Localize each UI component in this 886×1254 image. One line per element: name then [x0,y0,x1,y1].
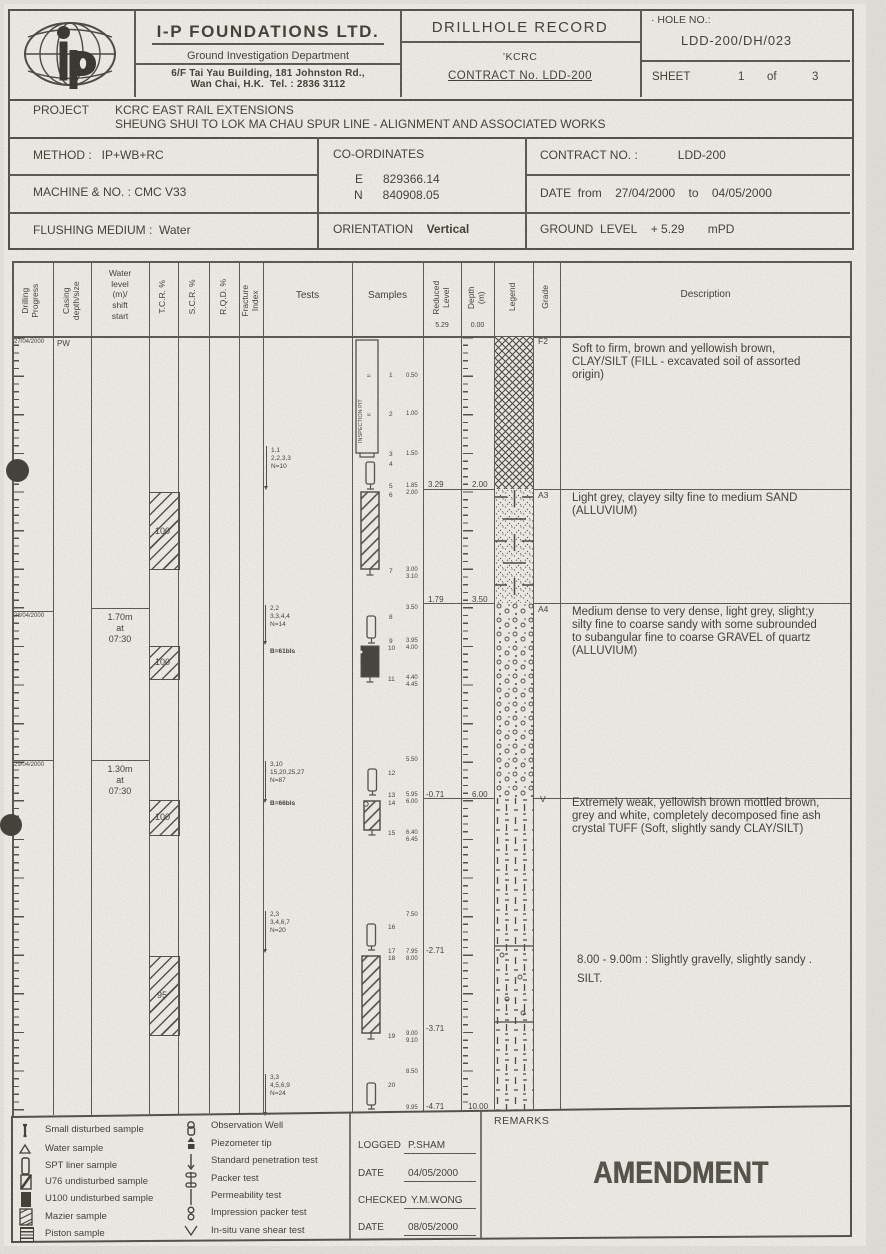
svg-text:≈: ≈ [367,412,371,419]
svg-text:≈: ≈ [367,373,371,380]
svg-text:INSPECTION PIT: INSPECTION PIT [358,399,364,443]
